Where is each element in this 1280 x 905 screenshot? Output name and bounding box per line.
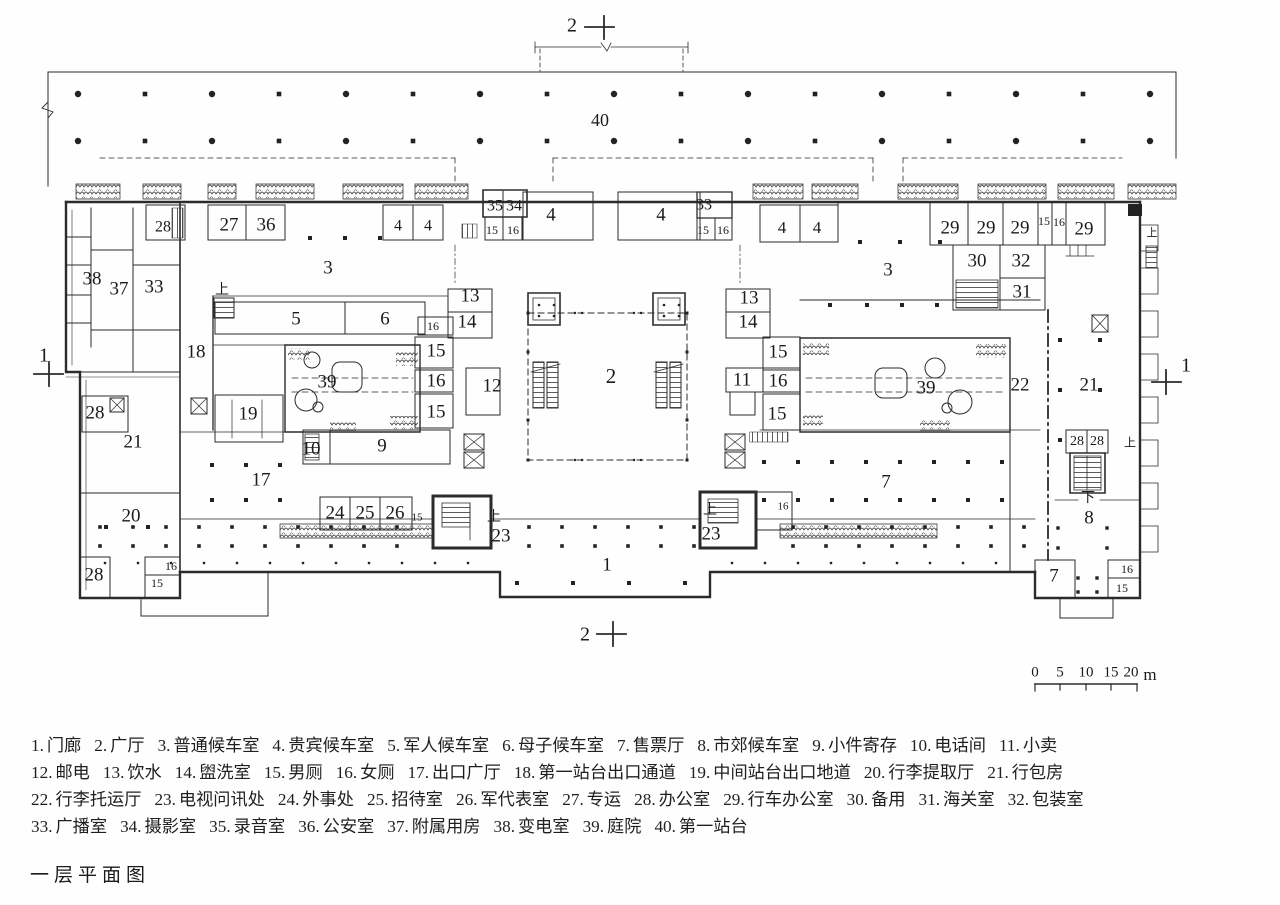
legend-item: 18.第一站台出口通道 xyxy=(514,763,676,782)
column-dot xyxy=(203,562,205,564)
column-dot xyxy=(938,240,942,244)
legend-item-number: 11. xyxy=(999,736,1020,755)
column-dot xyxy=(627,581,631,585)
column-dot xyxy=(467,562,469,564)
legend-item-number: 17. xyxy=(408,763,429,782)
room-number-label: 5 xyxy=(291,308,301,329)
room-number-label: 23 xyxy=(702,523,721,544)
legend-item-name: 贵宾候车室 xyxy=(288,736,374,755)
front-planters xyxy=(280,524,937,538)
legend-item: 32.包装室 xyxy=(1008,790,1084,809)
room-number-label: 34 xyxy=(506,198,522,215)
column-dot xyxy=(898,460,902,464)
column-dot xyxy=(1058,388,1062,392)
section-mark-label: 2 xyxy=(567,15,577,37)
column-dot xyxy=(791,544,795,548)
column-dot xyxy=(966,498,970,502)
legend-item-number: 27. xyxy=(562,790,583,809)
legend-item: 5.军人候车室 xyxy=(387,736,489,755)
legend-line: 33.广播室34.摄影室35.录音室36.公安室37.附属用房38.变电室39.… xyxy=(31,813,1253,840)
column-dot xyxy=(745,138,751,144)
legend-item-name: 出口广厅 xyxy=(432,763,501,782)
room-number-label: 13 xyxy=(740,287,759,308)
column-dot xyxy=(164,544,168,548)
legend-item-name: 行李提取厅 xyxy=(888,763,974,782)
legend-item: 34.摄影室 xyxy=(120,817,196,836)
column-dot xyxy=(796,460,800,464)
column-dot xyxy=(277,92,282,97)
room-number-label: 21 xyxy=(1080,374,1099,395)
column-dot xyxy=(1098,338,1102,342)
room-number-label: 39 xyxy=(917,377,936,398)
column-dot xyxy=(401,562,403,564)
room-number-label: 13 xyxy=(461,285,480,306)
legend-item: 3.普通候车室 xyxy=(158,736,260,755)
column-dot xyxy=(1022,544,1026,548)
room-number-label: 7 xyxy=(1049,565,1059,586)
column-dot xyxy=(796,498,800,502)
room-number-label: 16 xyxy=(165,559,177,573)
room-number-label: 7 xyxy=(881,471,891,492)
column-dot xyxy=(863,562,865,564)
room-number-label: 29 xyxy=(977,217,996,238)
legend-item: 31.海关室 xyxy=(919,790,995,809)
room-number-label: 2 xyxy=(606,364,617,388)
column-dot xyxy=(692,544,696,548)
legend-item: 13.饮水 xyxy=(103,763,162,782)
column-dot xyxy=(995,562,997,564)
legend-item-name: 门廊 xyxy=(47,736,81,755)
room-number-label: 39 xyxy=(318,371,337,392)
column-dot xyxy=(1058,338,1062,342)
platform-strip xyxy=(42,72,1176,186)
room-number-label: 16 xyxy=(778,501,790,513)
column-dot xyxy=(1076,590,1079,593)
column-dot xyxy=(269,562,271,564)
column-dot xyxy=(209,91,215,97)
legend-item: 28.办公室 xyxy=(634,790,710,809)
room-number-label: 40 xyxy=(591,110,609,130)
column-dot xyxy=(1147,138,1153,144)
legend-item-name: 市郊候车室 xyxy=(713,736,799,755)
legend-item-number: 9. xyxy=(812,736,825,755)
column-dot xyxy=(989,544,993,548)
legend-item-number: 5. xyxy=(387,736,400,755)
column-dot xyxy=(104,525,108,529)
column-dot xyxy=(900,303,904,307)
legend-item-name: 售票厅 xyxy=(633,736,685,755)
room-number-label: 16 xyxy=(427,370,446,391)
legend-item-name: 录音室 xyxy=(234,817,286,836)
room-number-label: 18 xyxy=(187,341,206,362)
column-dots xyxy=(75,91,1153,594)
legend-item-name: 外事处 xyxy=(302,790,354,809)
room-number-label: 16 xyxy=(769,370,788,391)
column-dot xyxy=(329,544,333,548)
column-dot xyxy=(343,138,349,144)
legend-item-number: 1. xyxy=(31,736,44,755)
column-dot xyxy=(879,91,885,97)
legend-item: 17.出口广厅 xyxy=(408,763,501,782)
legend-item-number: 33. xyxy=(31,817,52,836)
legend-item-number: 37. xyxy=(387,817,408,836)
stair-direction-label: 上 xyxy=(1124,436,1136,450)
column-dot xyxy=(263,525,267,529)
room-number-label: 28 xyxy=(1070,434,1084,449)
column-dot xyxy=(75,91,81,97)
legend-item-number: 36. xyxy=(298,817,319,836)
scale-tick-label: 5 xyxy=(1056,664,1064,680)
legend-item-name: 饮水 xyxy=(127,763,161,782)
legend-line: 1.门廊2.广厅3.普通候车室4.贵宾候车室5.军人候车室6.母子候车室7.售票… xyxy=(31,732,1253,759)
room-number-label: 15 xyxy=(412,512,424,524)
column-dot xyxy=(1022,525,1026,529)
column-dot xyxy=(898,498,902,502)
column-dot xyxy=(879,138,885,144)
room-number-label: 27 xyxy=(220,214,239,235)
scale-tick-label: 15 xyxy=(1104,664,1119,680)
legend-item-number: 18. xyxy=(514,763,535,782)
legend-item-number: 40. xyxy=(654,817,675,836)
legend-item: 25.招待室 xyxy=(367,790,443,809)
column-dot xyxy=(104,562,106,564)
legend-item-name: 电视问讯处 xyxy=(179,790,265,809)
column-dot xyxy=(395,544,399,548)
legend-item-number: 13. xyxy=(103,763,124,782)
legend-item: 33.广播室 xyxy=(31,817,107,836)
column-dot xyxy=(209,138,215,144)
stair-direction-label: 上 xyxy=(487,509,501,525)
column-dot xyxy=(1081,92,1086,97)
room-number-label: 12 xyxy=(483,375,502,396)
legend: 1.门廊2.广厅3.普通候车室4.贵宾候车室5.军人候车室6.母子候车室7.售票… xyxy=(31,732,1253,840)
column-dot xyxy=(277,139,282,144)
column-dot xyxy=(857,525,861,529)
drawing-title: 一层平面图 xyxy=(30,860,150,887)
column-dot xyxy=(545,92,550,97)
column-dot xyxy=(966,460,970,464)
legend-item-number: 16. xyxy=(336,763,357,782)
column-dot xyxy=(378,236,382,240)
column-dot xyxy=(947,92,952,97)
stair-direction-label: 上 xyxy=(703,502,717,518)
legend-item-number: 3. xyxy=(158,736,171,755)
column-dot xyxy=(683,581,687,585)
room-number-label: 4 xyxy=(546,204,556,225)
legend-item-number: 10. xyxy=(910,736,931,755)
column-dot xyxy=(278,463,282,467)
column-dot xyxy=(1095,590,1098,593)
column-dot xyxy=(308,236,312,240)
courtyard-left xyxy=(285,345,420,432)
legend-item-name: 母子候车室 xyxy=(518,736,604,755)
column-dot xyxy=(1056,546,1059,549)
east-facade-bays xyxy=(1140,225,1158,552)
column-dot xyxy=(244,498,248,502)
legend-item-name: 普通候车室 xyxy=(173,736,259,755)
room-number-label: 28 xyxy=(155,219,171,236)
column-dot xyxy=(244,463,248,467)
column-dot xyxy=(236,562,238,564)
room-number-label: 15 xyxy=(427,401,446,422)
legend-item: 40.第一站台 xyxy=(654,817,747,836)
legend-item-number: 19. xyxy=(689,763,710,782)
legend-item-name: 邮电 xyxy=(55,763,89,782)
section-canopy-bracket xyxy=(535,42,688,71)
column-dot xyxy=(411,139,416,144)
column-dot xyxy=(137,562,139,564)
legend-item: 9.小件寄存 xyxy=(812,736,897,755)
legend-item-name: 军人候车室 xyxy=(403,736,489,755)
legend-item-number: 29. xyxy=(723,790,744,809)
room-number-label: 38 xyxy=(83,268,102,289)
column-dot xyxy=(824,525,828,529)
legend-item-name: 庭院 xyxy=(607,817,641,836)
legend-item: 35.录音室 xyxy=(209,817,285,836)
platform-canopy-dashed xyxy=(100,158,1122,183)
legend-item-name: 摄影室 xyxy=(145,817,197,836)
legend-item: 6.母子候车室 xyxy=(502,736,604,755)
column-dot xyxy=(731,562,733,564)
column-dot xyxy=(560,525,564,529)
legend-item: 7.售票厅 xyxy=(617,736,684,755)
legend-item-number: 12. xyxy=(31,763,52,782)
column-dot xyxy=(929,562,931,564)
room-number-label: 15 xyxy=(1038,214,1050,228)
column-dot xyxy=(230,544,234,548)
legend-item-name: 变电室 xyxy=(518,817,570,836)
room-number-label: 36 xyxy=(257,214,276,235)
column-dot xyxy=(830,562,832,564)
room-number-label: 17 xyxy=(252,469,271,490)
legend-item: 2.广厅 xyxy=(94,736,144,755)
column-dot xyxy=(864,498,868,502)
legend-item-number: 24. xyxy=(278,790,299,809)
legend-item-number: 38. xyxy=(494,817,515,836)
column-dot xyxy=(828,303,832,307)
legend-item-name: 中间站台出口地道 xyxy=(713,763,851,782)
room-number-label: 15 xyxy=(427,340,446,361)
column-dot xyxy=(593,544,597,548)
column-dot xyxy=(75,138,81,144)
legend-item: 10.电话间 xyxy=(910,736,986,755)
room-number-label: 29 xyxy=(1011,217,1030,238)
stair-direction-label: 上 xyxy=(1147,226,1158,239)
legend-item: 8.市郊候车室 xyxy=(697,736,799,755)
legend-item-number: 15. xyxy=(264,763,285,782)
column-dot xyxy=(611,138,617,144)
room-number-label: 3 xyxy=(883,259,893,280)
legend-item: 24.外事处 xyxy=(278,790,354,809)
room-number-label: 24 xyxy=(326,502,346,523)
column-dot xyxy=(131,544,135,548)
room-number-label: 22 xyxy=(1011,374,1030,395)
column-dot xyxy=(830,498,834,502)
column-dot xyxy=(890,525,894,529)
column-dot xyxy=(1105,526,1108,529)
legend-item: 19.中间站台出口地道 xyxy=(689,763,851,782)
legend-line: 22.行李托运厅23.电视问讯处24.外事处25.招待室26.军代表室27.专运… xyxy=(31,786,1253,813)
column-dot xyxy=(797,562,799,564)
column-dot xyxy=(962,562,964,564)
legend-item-name: 包装室 xyxy=(1032,790,1084,809)
legend-item-name: 广播室 xyxy=(55,817,107,836)
column-dot xyxy=(329,525,333,529)
room-number-label: 33 xyxy=(145,276,164,297)
column-dot xyxy=(395,525,399,529)
legend-item: 27.专运 xyxy=(562,790,621,809)
scale-tick-label: 10 xyxy=(1079,664,1094,680)
legend-item-name: 专运 xyxy=(587,790,621,809)
legend-item: 22.行李托运厅 xyxy=(31,790,141,809)
legend-item-number: 25. xyxy=(367,790,388,809)
column-dot xyxy=(302,562,304,564)
room-number-label: 8 xyxy=(1084,507,1094,528)
room-number-label: 4 xyxy=(424,218,432,235)
column-dot xyxy=(762,498,766,502)
column-dot xyxy=(210,498,214,502)
legend-item-number: 23. xyxy=(154,790,175,809)
column-dot xyxy=(343,236,347,240)
column-dot xyxy=(864,460,868,464)
legend-item-name: 广厅 xyxy=(110,736,144,755)
room-number-label: 1 xyxy=(602,554,612,575)
legend-item: 12.邮电 xyxy=(31,763,90,782)
legend-item: 14.盥洗室 xyxy=(175,763,251,782)
legend-item: 38.变电室 xyxy=(494,817,570,836)
legend-item: 21.行包房 xyxy=(987,763,1063,782)
floor-plan-page: 4028273644383733353415164433151644292929… xyxy=(0,0,1280,905)
plan-labels: 4028273644383733353415164433151644292929… xyxy=(39,15,1191,684)
column-dot xyxy=(824,544,828,548)
legend-item-name: 女厕 xyxy=(360,763,394,782)
column-dot xyxy=(164,525,168,529)
column-dot xyxy=(278,498,282,502)
column-dot xyxy=(1013,138,1019,144)
room-number-label: 28 xyxy=(86,402,105,423)
legend-item: 36.公安室 xyxy=(298,817,374,836)
scale-bar xyxy=(1035,684,1137,691)
column-dot xyxy=(956,544,960,548)
room-number-label: 28 xyxy=(1090,434,1104,449)
room-number-label: 37 xyxy=(110,278,129,299)
room-number-label: 6 xyxy=(380,308,390,329)
legend-item-number: 39. xyxy=(583,817,604,836)
legend-item-name: 备用 xyxy=(871,790,905,809)
column-dot xyxy=(230,525,234,529)
legend-item: 15.男厕 xyxy=(264,763,323,782)
column-dot xyxy=(791,525,795,529)
legend-item-name: 行车办公室 xyxy=(748,790,834,809)
room-number-label: 20 xyxy=(122,505,141,526)
column-dot xyxy=(890,544,894,548)
legend-item-name: 办公室 xyxy=(659,790,711,809)
section-mark-label: 2 xyxy=(580,624,590,646)
column-dot xyxy=(659,544,663,548)
legend-item-number: 8. xyxy=(697,736,710,755)
legend-item-name: 第一站台出口通道 xyxy=(538,763,676,782)
column-dot xyxy=(932,498,936,502)
legend-item: 26.军代表室 xyxy=(456,790,549,809)
column-dot xyxy=(143,139,148,144)
column-dot xyxy=(146,525,150,529)
column-dot xyxy=(98,525,102,529)
column-dot xyxy=(527,525,531,529)
column-dot xyxy=(1076,576,1079,579)
column-dot xyxy=(1147,91,1153,97)
legend-item-name: 海关室 xyxy=(943,790,995,809)
column-dot xyxy=(560,544,564,548)
legend-item-name: 小卖 xyxy=(1023,736,1057,755)
column-dot xyxy=(989,525,993,529)
room-number-label: 16 xyxy=(507,223,519,237)
room-number-label: 4 xyxy=(656,204,666,225)
room-number-label: 15 xyxy=(768,403,787,424)
column-dot xyxy=(923,544,927,548)
column-dot xyxy=(813,92,818,97)
column-dot xyxy=(611,91,617,97)
legend-item-number: 2. xyxy=(94,736,107,755)
legend-item-number: 26. xyxy=(456,790,477,809)
legend-item: 37.附属用房 xyxy=(387,817,480,836)
legend-item: 4.贵宾候车室 xyxy=(272,736,374,755)
column-dot xyxy=(659,525,663,529)
room-number-label: 15 xyxy=(151,576,163,590)
legend-item-name: 附属用房 xyxy=(412,817,481,836)
column-dot xyxy=(362,544,366,548)
room-number-label: 16 xyxy=(427,319,439,333)
room-number-label: 3 xyxy=(323,257,333,278)
column-dot xyxy=(197,525,201,529)
legend-item-number: 22. xyxy=(31,790,52,809)
column-dot xyxy=(830,460,834,464)
room-number-label: 23 xyxy=(492,525,511,546)
room-number-label: 31 xyxy=(1013,281,1032,302)
legend-item-number: 21. xyxy=(987,763,1008,782)
legend-item-name: 行李托运厅 xyxy=(55,790,141,809)
column-dot xyxy=(1058,438,1062,442)
column-dot xyxy=(98,544,102,548)
column-dot xyxy=(956,525,960,529)
legend-line: 12.邮电13.饮水14.盥洗室15.男厕16.女厕17.出口广厅18.第一站台… xyxy=(31,759,1253,786)
room-number-label: 16 xyxy=(1121,562,1133,576)
column-dot xyxy=(1105,546,1108,549)
column-dot xyxy=(368,562,370,564)
column-dot xyxy=(1013,91,1019,97)
column-dot xyxy=(296,544,300,548)
room-number-label: 10 xyxy=(302,438,321,459)
room-number-label: 29 xyxy=(1075,218,1094,239)
column-dot xyxy=(197,544,201,548)
column-dot xyxy=(865,303,869,307)
right-wing xyxy=(1010,204,1158,598)
room-number-label: 4 xyxy=(778,218,787,237)
legend-item-number: 20. xyxy=(864,763,885,782)
column-dot xyxy=(263,544,267,548)
room-number-label: 16 xyxy=(717,223,729,237)
legend-item-number: 35. xyxy=(209,817,230,836)
room-number-label: 21 xyxy=(124,431,143,452)
stair-direction-label: 上 xyxy=(215,282,229,298)
legend-item: 11.小卖 xyxy=(999,736,1057,755)
room-number-label: 30 xyxy=(968,250,987,271)
column-dot xyxy=(762,460,766,464)
legend-item-number: 14. xyxy=(175,763,196,782)
legend-item-number: 28. xyxy=(634,790,655,809)
legend-item-number: 30. xyxy=(847,790,868,809)
legend-item-name: 男厕 xyxy=(288,763,322,782)
column-dot xyxy=(896,562,898,564)
